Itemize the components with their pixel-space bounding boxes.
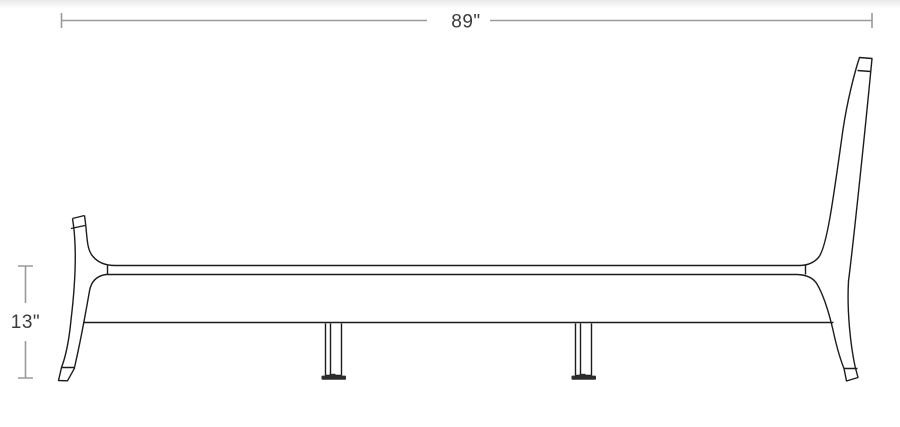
center-leg-2-floor-glide xyxy=(572,376,597,380)
height-dimension: 13" xyxy=(11,266,40,378)
center-leg-1 xyxy=(322,324,347,380)
height-dimension-label: 13" xyxy=(11,312,40,333)
bed-dimension-diagram: 89" 13" xyxy=(0,0,900,427)
headboard-cap-lines xyxy=(858,71,871,72)
diagram-canvas: 89" 13" xyxy=(0,0,900,427)
headboard-foot xyxy=(844,369,858,382)
center-leg-2 xyxy=(572,324,597,380)
center-leg-2-lines xyxy=(576,324,592,376)
center-leg-1-floor-glide xyxy=(322,376,347,380)
width-dimension-label: 89" xyxy=(451,12,480,33)
rail-joint-ticks xyxy=(108,266,806,275)
bed-frame-drawing xyxy=(59,58,873,382)
footboard-outer-edge xyxy=(62,219,76,368)
footboard-foot xyxy=(59,368,76,381)
frame-lower-outline xyxy=(75,275,845,369)
center-leg-1-lines xyxy=(326,324,342,376)
width-dimension: 89" xyxy=(62,12,873,33)
